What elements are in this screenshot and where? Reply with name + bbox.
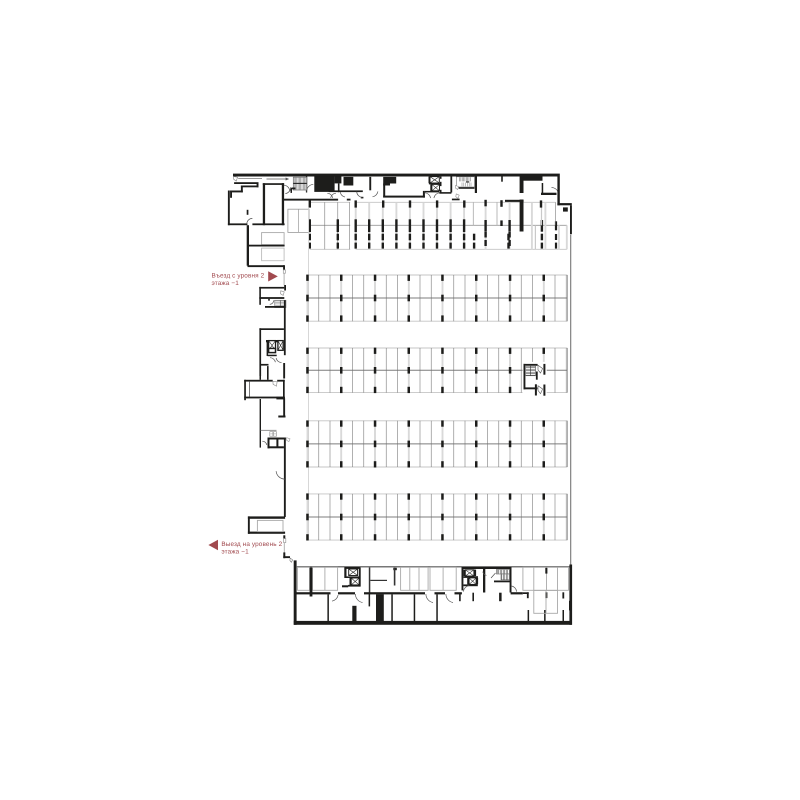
svg-text:Въезд с уровня 2: Въезд с уровня 2 [212, 273, 265, 280]
svg-text:Выезд на уровень 2: Выезд на уровень 2 [221, 541, 282, 548]
svg-text:этажа −1: этажа −1 [221, 549, 249, 556]
svg-text:этажа −1: этажа −1 [212, 280, 240, 287]
